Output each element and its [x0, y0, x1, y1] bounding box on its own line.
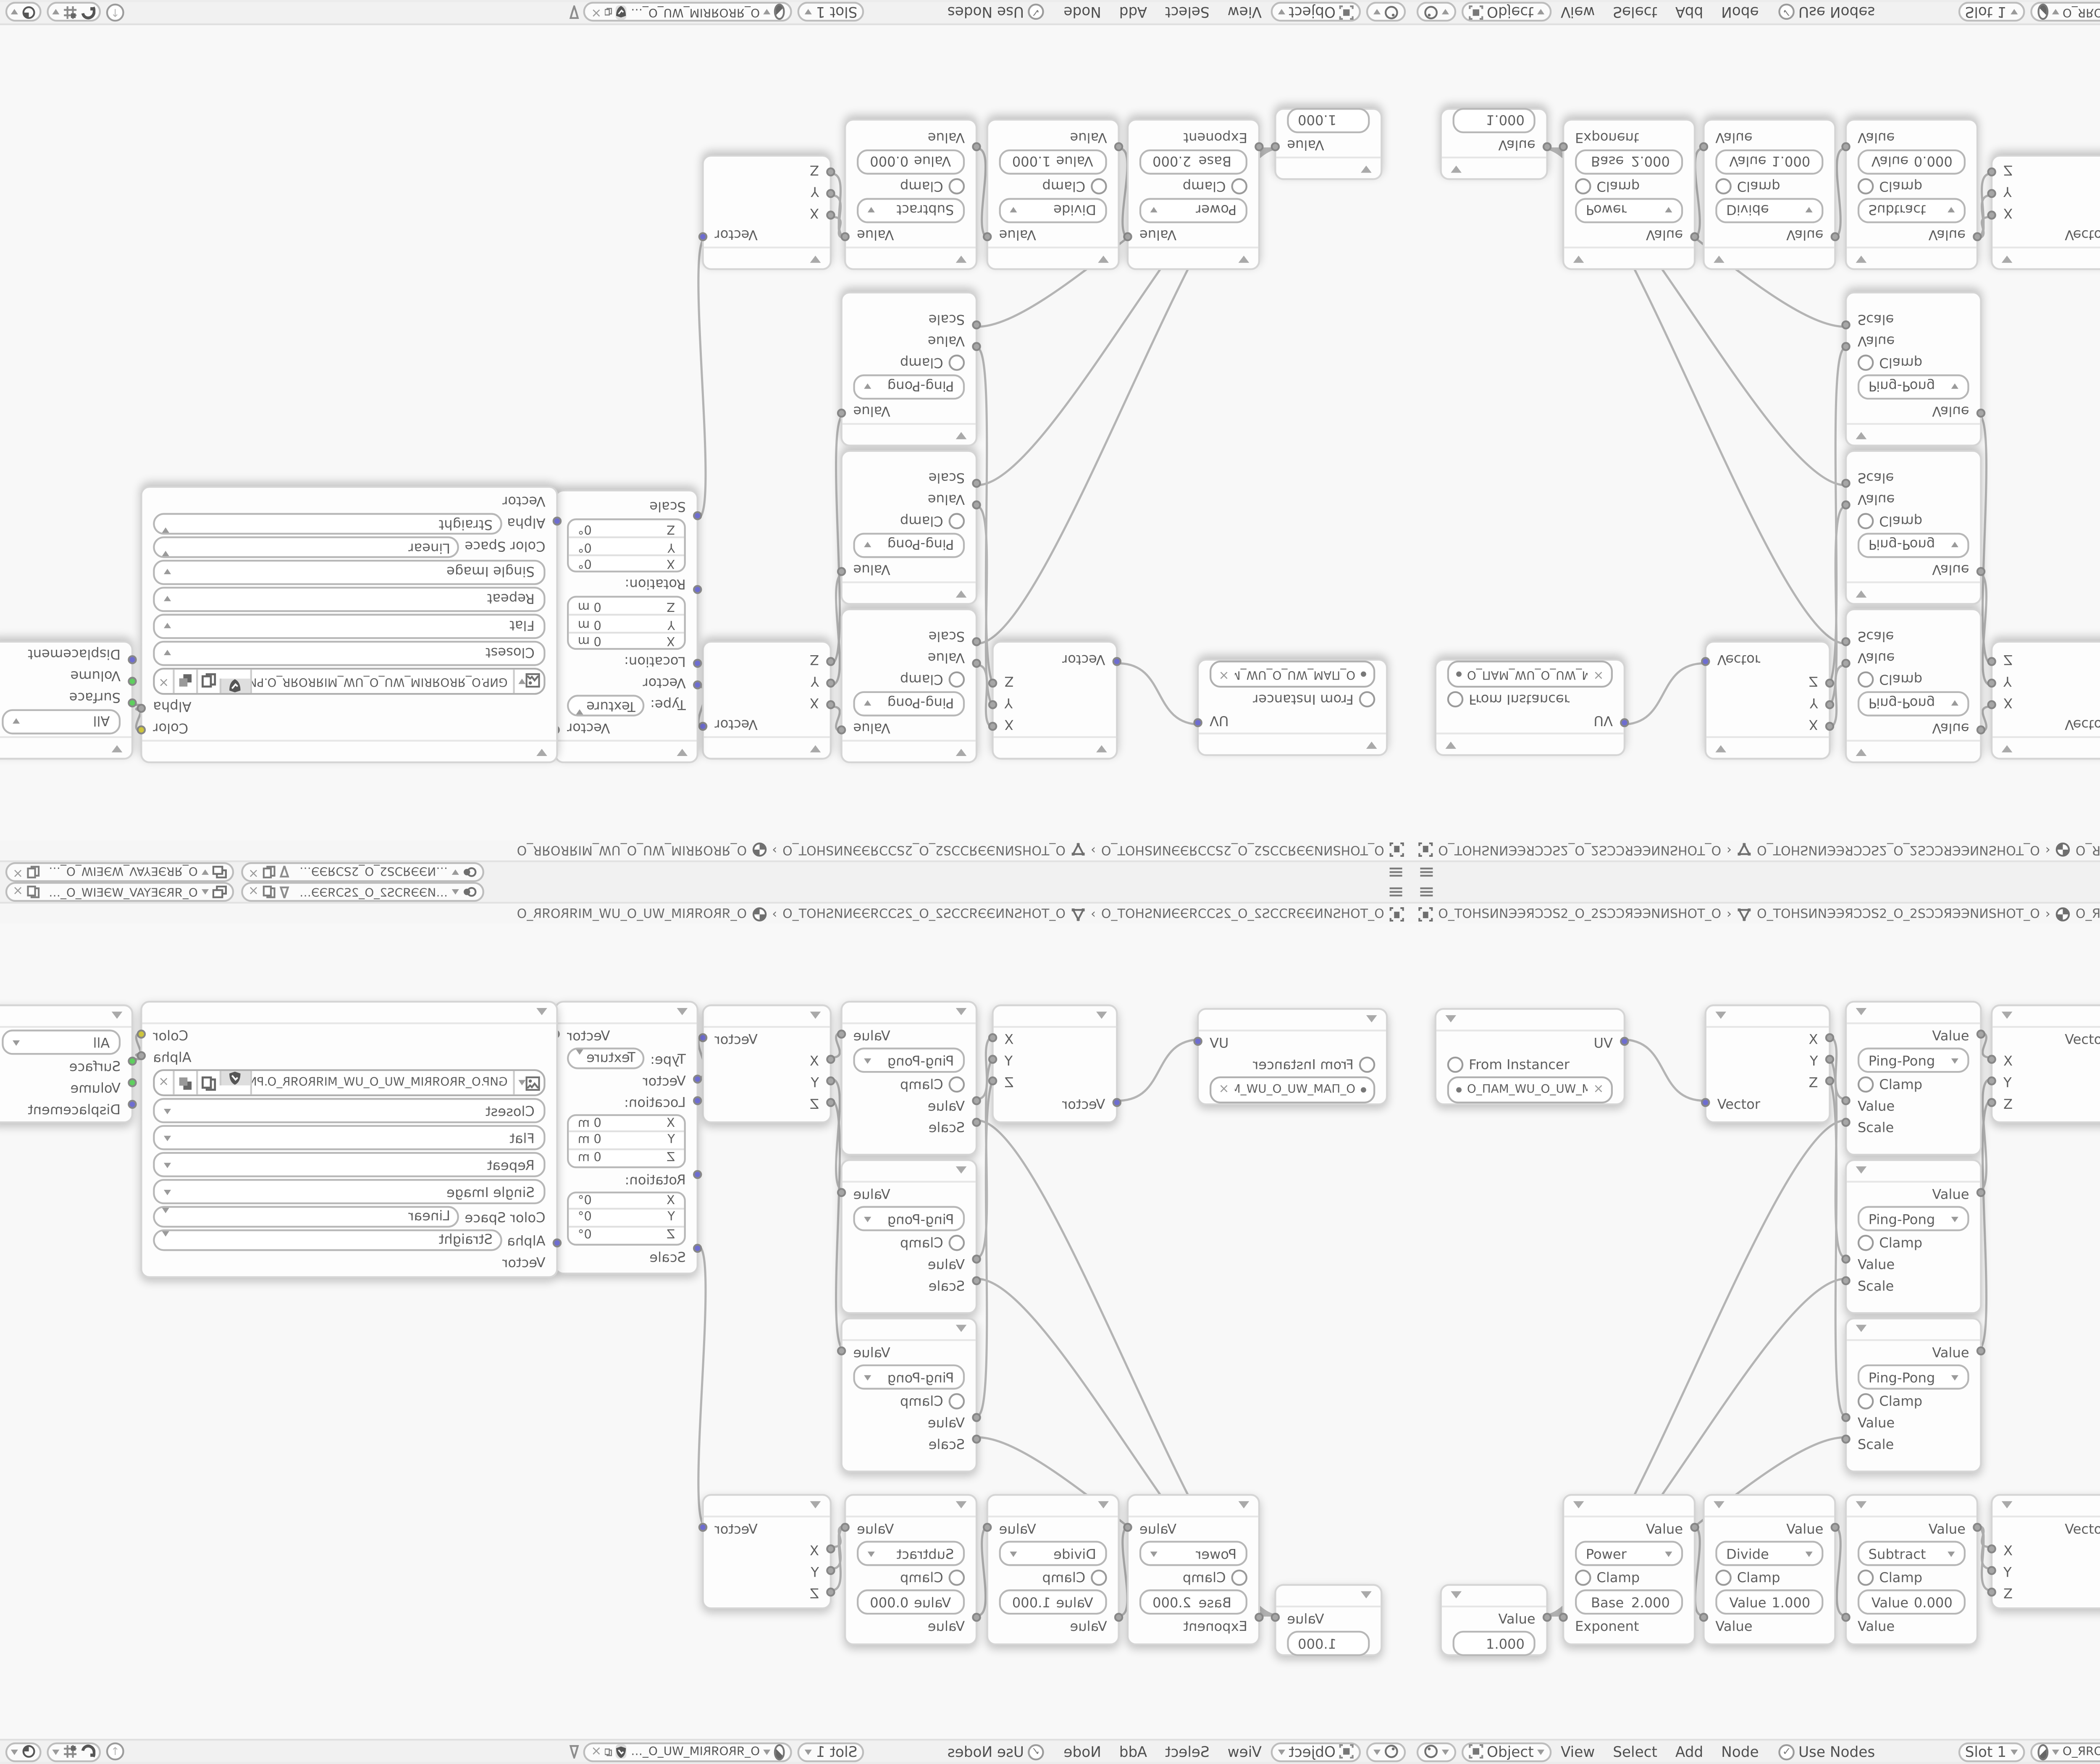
new-copy-icon[interactable] [605, 6, 613, 19]
snap-controls[interactable] [47, 3, 101, 22]
axis-field[interactable]: Z0° [569, 1226, 684, 1242]
vector-socket[interactable] [693, 1170, 702, 1179]
checkbox[interactable]: Clamp [853, 1391, 965, 1411]
menu-add[interactable]: Add [1119, 5, 1147, 21]
dropdown[interactable]: Power [1139, 1541, 1247, 1566]
node-combine-xyz-top[interactable]: VectorXYZ [1991, 641, 2100, 760]
dropdown[interactable]: Divide [1715, 1541, 1823, 1566]
dropdown[interactable]: Linear [153, 1206, 459, 1227]
value-socket[interactable] [1699, 1613, 1708, 1622]
value-socket[interactable] [1987, 210, 1996, 219]
uv-map-selector[interactable]: O_ПAM_WU_O_UW_MAП_O× [1447, 1076, 1613, 1103]
collapse-icon[interactable] [1856, 432, 1867, 439]
menu-node[interactable]: Node [1063, 1743, 1101, 1760]
collapse-icon[interactable] [677, 749, 688, 756]
xyz-field-group[interactable]: X0°Y0°Z0° [567, 518, 686, 572]
number-field[interactable]: 1.000 [1287, 108, 1370, 133]
value-socket[interactable] [837, 1188, 846, 1197]
close-icon[interactable]: × [1218, 668, 1229, 680]
dropdown[interactable]: Straight [153, 1229, 501, 1251]
dropdown[interactable]: Flat [153, 614, 545, 639]
editor-type-button[interactable] [1366, 1741, 1406, 1761]
dropdown[interactable]: All [2, 1029, 121, 1055]
axis-field[interactable]: Y0 m [569, 616, 684, 633]
value-socket[interactable] [837, 1347, 846, 1355]
pin-icon[interactable] [278, 886, 289, 898]
value-socket[interactable] [826, 1055, 835, 1063]
new-copy-icon[interactable] [27, 866, 39, 878]
vector-socket[interactable] [128, 1100, 136, 1109]
node-math-divide[interactable]: ValueDivideClampValue1.000Value [987, 1494, 1120, 1645]
value-socket[interactable] [826, 657, 835, 666]
vector-socket[interactable] [1193, 1037, 1202, 1046]
value-socket[interactable] [1690, 232, 1699, 241]
breadcrumb-material[interactable]: O_ЯROЯRIM_WU_O_UW_MIЯROЯR_O [2076, 843, 2100, 858]
collapse-icon[interactable] [956, 591, 967, 598]
node-math-ping-pong-1[interactable]: ValuePing-PongClampValueScale [1845, 609, 1982, 764]
menu-add[interactable]: Add [1119, 1743, 1147, 1760]
node-combine-xyz-bottom[interactable]: VectorXYZ [702, 155, 832, 270]
material-selector[interactable]: O_ЯROЯRIM_WU_O_UW_MIЯROЯR_O × [584, 3, 793, 22]
node-mapping[interactable]: VectorType:TextureVectorLocation:X0 mY0 … [554, 1001, 698, 1274]
checkbox[interactable]: Clamp [853, 1233, 965, 1253]
node-math-ping-pong-3[interactable]: ValuePing-PongClampValueScale [1845, 291, 1982, 446]
axis-field[interactable]: X0° [569, 1193, 684, 1208]
value-socket[interactable] [1255, 142, 1263, 151]
axis-field[interactable]: Z0° [569, 522, 684, 538]
node-math-ping-pong-2[interactable]: ValuePing-PongClampValueScale [840, 450, 977, 605]
fake-user-shield-icon[interactable] [617, 1744, 627, 1759]
dropdown[interactable]: Subtract [857, 1541, 965, 1566]
node-separate-xyz[interactable]: XYZVector [992, 1004, 1118, 1123]
vector-socket[interactable] [693, 511, 702, 520]
number-field[interactable]: Base2.000 [1575, 1589, 1683, 1614]
collapse-icon[interactable] [112, 1012, 123, 1019]
vector-socket[interactable] [553, 1239, 562, 1247]
axis-field[interactable]: Z0 m [569, 599, 684, 616]
axis-field[interactable]: Y0° [569, 1208, 684, 1225]
value-socket[interactable] [1841, 1096, 1850, 1105]
snap-target-grid-icon[interactable] [63, 1744, 77, 1759]
checkbox[interactable]: Clamp [1858, 1568, 1966, 1588]
collapse-icon[interactable] [1715, 1012, 1726, 1019]
dropdown[interactable]: Ping-Pong [1858, 691, 1969, 717]
axis-field[interactable]: X0° [569, 556, 684, 571]
checkbox[interactable]: Clamp [1575, 176, 1683, 196]
shader-socket[interactable] [128, 677, 136, 685]
shader-type-dropdown[interactable]: Object [1270, 1741, 1361, 1761]
value-socket[interactable] [1977, 1029, 1985, 1038]
dropdown[interactable]: Repeat [153, 1152, 545, 1177]
dropdown[interactable]: Ping-Pong [1858, 533, 1969, 558]
collapse-icon[interactable] [956, 1166, 967, 1173]
value-socket[interactable] [972, 479, 981, 488]
menu-node[interactable]: Node [1063, 5, 1101, 21]
image-icon[interactable] [513, 1071, 543, 1095]
close-icon[interactable]: × [1593, 668, 1604, 680]
value-socket[interactable] [1987, 168, 1996, 176]
node-math-power[interactable]: ValuePowerClampBase2.000Exponent [1127, 119, 1260, 270]
collapse-icon[interactable] [810, 745, 821, 752]
value-socket[interactable] [1977, 409, 1985, 417]
collapse-icon[interactable] [536, 1008, 547, 1015]
number-field[interactable]: Base2.000 [1139, 150, 1247, 175]
collapse-icon[interactable] [1573, 1501, 1584, 1508]
value-socket[interactable] [1114, 1613, 1123, 1622]
node-uv-map[interactable]: UVFrom InstancerO_ПAM_WU_O_UW_MAП_O× [1435, 659, 1625, 756]
viewlayer-selector[interactable]: O_ЯRЭEYAV_WЭEIW_O_WIЭEW_VAYЭEЯR_O × [5, 882, 234, 902]
close-icon[interactable]: × [1593, 1084, 1604, 1096]
menu-view[interactable]: View [1561, 1743, 1595, 1760]
node-separate-xyz[interactable]: XYZVector [1705, 641, 1831, 760]
checkbox[interactable]: Clamp [1858, 353, 1969, 373]
collapse-icon[interactable] [1361, 1591, 1372, 1599]
node-uv-map[interactable]: UVFrom InstancerO_ПAM_WU_O_UW_MAП_O× [1435, 1008, 1625, 1105]
menu-select[interactable]: Select [1165, 1743, 1210, 1760]
checkbox[interactable]: Clamp [853, 353, 965, 373]
dropdown[interactable]: Ping-Pong [853, 691, 965, 717]
collapse-icon[interactable] [2002, 256, 2013, 263]
dropdown[interactable]: Texture [567, 1047, 645, 1069]
value-socket[interactable] [972, 342, 981, 351]
axis-field[interactable]: Z0 m [569, 1148, 684, 1165]
new-copy-icon[interactable] [262, 886, 275, 898]
value-socket[interactable] [1825, 1076, 1834, 1085]
number-field[interactable]: Value1.000 [999, 150, 1107, 175]
node-uv-map[interactable]: UVFrom InstancerO_ПAM_WU_O_UW_MAП_O× [1197, 1008, 1388, 1105]
use-nodes-checkbox[interactable]: ✓ Use Nodes [1779, 5, 1875, 21]
value-socket[interactable] [1841, 1435, 1850, 1444]
dropdown[interactable]: Ping-Pong [1858, 1206, 1969, 1231]
image-icon[interactable] [513, 669, 543, 693]
fake-user-shield-icon[interactable] [219, 1071, 250, 1085]
vector-socket[interactable] [1701, 1098, 1710, 1107]
node-value[interactable]: Value1.000 [1440, 1584, 1548, 1656]
value-socket[interactable] [1841, 1276, 1850, 1285]
dropdown[interactable]: Texture [567, 695, 645, 716]
node-mapping[interactable]: VectorType:TextureVectorLocation:X0 mY0 … [554, 490, 698, 763]
value-socket[interactable] [1825, 679, 1834, 688]
use-nodes-checkbox[interactable]: ✓ Use Nodes [948, 1743, 1044, 1760]
collapse-icon[interactable] [677, 1008, 688, 1015]
menu-select[interactable]: Select [1165, 5, 1210, 21]
dropdown[interactable]: Flat [153, 1125, 545, 1150]
checkbox[interactable]: From Instancer [1210, 689, 1375, 709]
checkbox[interactable]: From Instancer [1447, 1055, 1613, 1074]
collapse-icon[interactable] [1714, 256, 1725, 263]
value-socket[interactable] [1271, 1613, 1280, 1622]
menu-hamburger-icon[interactable] [1390, 868, 1402, 877]
vector-socket[interactable] [1620, 718, 1629, 727]
dropdown[interactable]: Power [1575, 198, 1683, 223]
value-socket[interactable] [972, 1613, 981, 1622]
checkbox[interactable]: Clamp [1575, 1568, 1683, 1588]
checkbox[interactable]: Clamp [1858, 1075, 1969, 1095]
checkbox[interactable]: Clamp [999, 176, 1107, 196]
collapse-icon[interactable] [1096, 745, 1107, 752]
collapse-icon[interactable] [1856, 591, 1867, 598]
number-field[interactable]: Value1.000 [1715, 150, 1823, 175]
node-math-ping-pong-1[interactable]: ValuePing-PongClampValueScale [1845, 1001, 1982, 1156]
node-canvas[interactable]: UVFrom InstancerO_ПAM_WU_O_UW_MAП_O×XYZV… [0, 25, 1411, 840]
value-socket[interactable] [1977, 1188, 1985, 1197]
chevron-down-icon[interactable] [11, 1749, 18, 1754]
node-math-power[interactable]: ValuePowerClampBase2.000Exponent [1562, 1494, 1696, 1645]
checkbox[interactable]: From Instancer [1447, 689, 1613, 709]
value-socket[interactable] [1114, 142, 1123, 151]
breadcrumb-data[interactable]: O_TOHSИNЭЭЯƆƆS2_O_2SƆƆЯЭЭNИSHOT_O [1757, 843, 2040, 858]
new-copy-icon[interactable] [27, 886, 39, 898]
node-math-ping-pong-3[interactable]: ValuePing-PongClampValueScale [1845, 1318, 1982, 1473]
value-socket[interactable] [972, 1276, 981, 1285]
value-socket[interactable] [1841, 320, 1850, 329]
vector-socket[interactable] [698, 722, 707, 731]
dropdown[interactable]: Divide [1715, 198, 1823, 223]
collapse-icon[interactable] [1366, 1015, 1377, 1022]
number-field[interactable]: Value0.000 [857, 150, 965, 175]
node-canvas[interactable]: UVFrom InstancerO_ПAM_WU_O_UW_MAП_O×XYZV… [1411, 25, 2100, 840]
menu-select[interactable]: Select [1613, 1743, 1657, 1760]
shader-socket[interactable] [128, 1078, 136, 1087]
axis-field[interactable]: Y0 m [569, 1131, 684, 1148]
collapse-icon[interactable] [1856, 1325, 1867, 1332]
close-icon[interactable]: × [13, 866, 23, 878]
axis-field[interactable]: X0 m [569, 633, 684, 648]
close-icon[interactable]: × [155, 669, 173, 693]
collapse-icon[interactable] [1098, 256, 1109, 263]
image-datablock-selector[interactable]: GИP.O_ЯROЯRIM_WU_O_UW_MIЯROЯR_O.PNG× [153, 668, 545, 695]
dropdown[interactable]: Power [1139, 198, 1247, 223]
vector-socket[interactable] [1620, 1037, 1629, 1046]
checkbox[interactable]: Clamp [1715, 176, 1823, 196]
auto-offset-icon[interactable]: ↑ [106, 4, 124, 22]
chevron-down-icon[interactable] [11, 10, 18, 16]
number-field[interactable]: 1.000 [1453, 108, 1536, 133]
number-field[interactable]: Value1.000 [999, 1589, 1107, 1614]
node-combine-xyz-bottom[interactable]: VectorXYZ [1991, 155, 2100, 270]
auto-offset-icon[interactable]: ↑ [106, 1743, 124, 1761]
checkbox[interactable]: Clamp [1858, 1233, 1969, 1253]
close-icon[interactable]: × [13, 886, 23, 898]
close-icon[interactable]: × [591, 6, 601, 19]
value-socket[interactable] [1977, 725, 1985, 734]
collapse-icon[interactable] [536, 749, 547, 756]
checkbox[interactable]: Clamp [1715, 1568, 1823, 1588]
value-socket[interactable] [837, 567, 846, 576]
xyz-field-group[interactable]: X0 mY0 mZ0 m [567, 1114, 686, 1168]
breadcrumb-data[interactable]: O_TOHSИNЭЭЯƆƆS2_O_2SƆƆЯЭЭNИSHOT_O [1757, 906, 2040, 921]
value-socket[interactable] [1825, 1055, 1834, 1063]
checkbox[interactable]: Clamp [1139, 1568, 1247, 1588]
collapse-icon[interactable] [1451, 1591, 1462, 1599]
collapse-icon[interactable] [1856, 256, 1867, 263]
collapse-icon[interactable] [956, 749, 967, 756]
collapse-icon[interactable] [1361, 165, 1372, 173]
checkbox[interactable]: Clamp [857, 1568, 965, 1588]
use-nodes-checkbox[interactable]: ✓ Use Nodes [948, 5, 1044, 21]
vector-socket[interactable] [693, 585, 702, 594]
proportional-edit-icon[interactable] [21, 1744, 36, 1759]
checkbox[interactable]: Clamp [1139, 176, 1247, 196]
collapse-icon[interactable] [1096, 1012, 1107, 1019]
slot-dropdown[interactable]: Slot 1 [1958, 3, 2024, 22]
number-field[interactable]: 1.000 [1287, 1631, 1370, 1656]
node-math-power[interactable]: ValuePowerClampBase2.000Exponent [1562, 119, 1696, 270]
dropdown[interactable]: Ping-Pong [1858, 374, 1969, 399]
menu-hamburger-icon[interactable] [1420, 868, 1433, 877]
value-socket[interactable] [983, 1523, 992, 1532]
value-socket[interactable] [1831, 232, 1840, 241]
dropdown[interactable]: Ping-Pong [853, 1365, 965, 1390]
value-socket[interactable] [972, 1413, 981, 1422]
node-math-divide[interactable]: ValueDivideClampValue1.000Value [1703, 119, 1836, 270]
value-socket[interactable] [1977, 1347, 1985, 1355]
material-selector[interactable]: O_ЯROЯRIM_WU_O_UW_MIЯROЯR_O × [2030, 1741, 2100, 1761]
collapse-icon[interactable] [956, 1325, 967, 1332]
slot-dropdown[interactable]: Slot 1 [1958, 1741, 2024, 1761]
node-math-power[interactable]: ValuePowerClampBase2.000Exponent [1127, 1494, 1260, 1645]
breadcrumb-data[interactable]: O_TOHSИNЭЭЯƆƆS2_O_2SƆƆЯЭЭNИSHOT_O [782, 843, 1066, 858]
new-copy-icon[interactable] [196, 1071, 220, 1095]
node-math-ping-pong-3[interactable]: ValuePing-PongClampValueScale [840, 1318, 977, 1473]
node-combine-xyz-top[interactable]: VectorXYZ [702, 1004, 832, 1123]
value-socket[interactable] [972, 320, 981, 329]
uv-map-selector[interactable]: O_ПAM_WU_O_UW_MAП_O× [1447, 661, 1613, 688]
collapse-icon[interactable] [1451, 165, 1462, 173]
value-socket[interactable] [1987, 1566, 1996, 1575]
slot-dropdown[interactable]: Slot 1 [798, 1741, 864, 1761]
value-socket[interactable] [1825, 700, 1834, 709]
vector-socket[interactable] [1193, 718, 1202, 727]
vector-socket[interactable] [698, 1523, 707, 1532]
collapse-icon[interactable] [810, 1012, 821, 1019]
node-canvas[interactable]: UVFrom InstancerO_ПAM_WU_O_UW_MAП_O×XYZV… [1411, 924, 2100, 1739]
value-socket[interactable] [988, 1076, 997, 1085]
value-socket[interactable] [1543, 1613, 1551, 1622]
value-socket[interactable] [1987, 1588, 1996, 1596]
node-math-subtract[interactable]: ValueSubtractClampValue0.000Value [1845, 1494, 1978, 1645]
value-socket[interactable] [837, 1029, 846, 1038]
collapse-icon[interactable] [1445, 742, 1456, 749]
value-socket[interactable] [983, 232, 992, 241]
chevron-down-icon[interactable] [52, 1749, 59, 1754]
close-icon[interactable]: × [248, 866, 259, 878]
value-socket[interactable] [972, 1435, 981, 1444]
magnet-icon[interactable] [81, 5, 95, 20]
shader-type-dropdown[interactable]: Object [1270, 3, 1361, 22]
collapse-icon[interactable] [1856, 749, 1867, 756]
value-socket[interactable] [1841, 1413, 1850, 1422]
value-socket[interactable] [826, 168, 835, 176]
value-socket[interactable] [1841, 1613, 1850, 1622]
collapse-icon[interactable] [112, 745, 123, 752]
dropdown[interactable]: Closest [153, 1098, 545, 1123]
value-socket[interactable] [988, 1055, 997, 1063]
overlay-controls[interactable] [5, 3, 42, 22]
xyz-field-group[interactable]: X0 mY0 mZ0 m [567, 596, 686, 650]
value-socket[interactable] [1973, 232, 1982, 241]
pin-icon[interactable] [570, 1744, 580, 1759]
value-socket[interactable] [1825, 1033, 1834, 1042]
new-copy-icon[interactable] [196, 669, 220, 693]
vector-socket[interactable] [693, 1075, 702, 1084]
breadcrumb-material[interactable]: O_ЯROЯRIM_WU_O_UW_MIЯROЯR_O [517, 843, 747, 858]
value-socket[interactable] [826, 189, 835, 198]
collapse-icon[interactable] [956, 1008, 967, 1015]
value-socket[interactable] [1831, 1523, 1840, 1532]
vector-socket[interactable] [698, 1033, 707, 1042]
menu-select[interactable]: Select [1613, 5, 1657, 21]
node-math-subtract[interactable]: ValueSubtractClampValue0.000Value [1845, 119, 1978, 270]
editor-type-button[interactable] [1417, 1741, 1456, 1761]
dropdown[interactable]: All [2, 709, 121, 735]
collapse-icon[interactable] [1239, 256, 1249, 263]
collapse-icon[interactable] [1445, 1015, 1456, 1022]
value-socket[interactable] [1987, 1098, 1996, 1107]
breadcrumb-material[interactable]: O_ЯROЯRIM_WU_O_UW_MIЯROЯR_O [517, 906, 747, 921]
collapse-icon[interactable] [1856, 1166, 1867, 1173]
value-socket[interactable] [826, 1588, 835, 1596]
alpha-socket[interactable] [137, 1051, 146, 1060]
node-math-divide[interactable]: ValueDivideClampValue1.000Value [1703, 1494, 1836, 1645]
node-uv-map[interactable]: UVFrom InstancerO_ПAM_WU_O_UW_MAП_O× [1197, 659, 1388, 756]
uv-map-selector[interactable]: O_ПAM_WU_O_UW_MAП_O× [1210, 1076, 1375, 1103]
value-socket[interactable] [1977, 567, 1985, 576]
node-math-divide[interactable]: ValueDivideClampValue1.000Value [987, 119, 1120, 270]
number-field[interactable]: Value0.000 [857, 1589, 965, 1614]
dropdown[interactable]: Divide [999, 198, 1107, 223]
checkbox[interactable]: Clamp [1858, 1391, 1969, 1411]
dropdown[interactable]: Subtract [857, 198, 965, 223]
value-socket[interactable] [1841, 637, 1850, 646]
node-math-ping-pong-2[interactable]: ValuePing-PongClampValueScale [840, 1159, 977, 1314]
xyz-field-group[interactable]: X0°Y0°Z0° [567, 1192, 686, 1246]
collapse-icon[interactable] [1239, 1501, 1249, 1508]
dropdown[interactable]: Single Image [153, 1179, 545, 1204]
menu-add[interactable]: Add [1675, 1743, 1703, 1760]
collapse-icon[interactable] [810, 256, 821, 263]
collapse-icon[interactable] [2002, 745, 2013, 752]
value-socket[interactable] [988, 700, 997, 709]
chevron-down-icon[interactable] [201, 869, 208, 875]
proportional-edit-icon[interactable] [21, 5, 36, 20]
vector-socket[interactable] [693, 680, 702, 689]
node-canvas[interactable]: UVFrom InstancerO_ПAM_WU_O_UW_MAП_O×XYZV… [0, 924, 1411, 1739]
vector-socket[interactable] [693, 1244, 702, 1252]
dropdown[interactable]: Subtract [1858, 198, 1966, 223]
image-datablock-selector[interactable]: GИP.O_ЯROЯRIM_WU_O_UW_MIЯROЯR_O.PNG× [153, 1069, 545, 1096]
collapse-icon[interactable] [1856, 1501, 1867, 1508]
checkbox[interactable]: Clamp [1858, 669, 1969, 689]
value-socket[interactable] [1543, 142, 1551, 151]
node-math-ping-pong-2[interactable]: ValuePing-PongClampValueScale [1845, 450, 1982, 605]
dropdown[interactable]: Repeat [153, 587, 545, 612]
number-field[interactable]: Value0.000 [1858, 1589, 1966, 1614]
menu-view[interactable]: View [1561, 5, 1595, 21]
value-socket[interactable] [826, 210, 835, 219]
number-field[interactable]: 1.000 [1453, 1631, 1536, 1656]
collapse-icon[interactable] [1856, 1008, 1867, 1015]
shader-type-dropdown[interactable]: Object [1462, 3, 1552, 22]
axis-field[interactable]: Y0° [569, 538, 684, 555]
node-math-ping-pong-2[interactable]: ValuePing-PongClampValueScale [1845, 1159, 1982, 1314]
node-separate-xyz[interactable]: XYZVector [992, 641, 1118, 760]
value-socket[interactable] [1255, 1613, 1263, 1622]
value-socket[interactable] [1559, 142, 1567, 151]
menu-hamburger-icon[interactable] [1390, 887, 1402, 896]
snap-controls[interactable] [47, 1741, 101, 1761]
value-socket[interactable] [1841, 342, 1850, 351]
